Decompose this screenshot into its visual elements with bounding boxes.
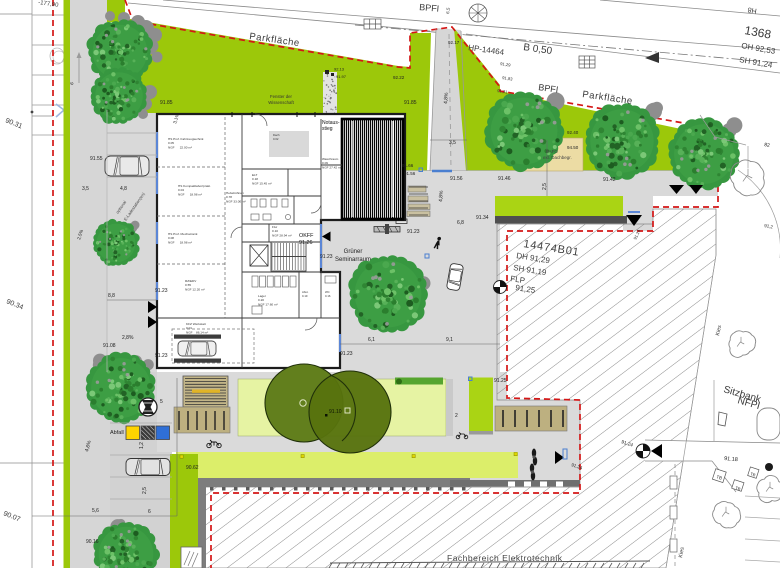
svg-text:91.23: 91.23 [155,288,168,294]
svg-text:4,8: 4,8 [120,186,127,192]
svg-text:92.13: 92.13 [334,67,345,72]
svg-text:Fachbereich Elektrotechnik: Fachbereich Elektrotechnik [447,553,563,563]
svg-text:2,5: 2,5 [142,487,148,494]
svg-text:6,1: 6,1 [368,337,375,343]
svg-text:91.18: 91.18 [724,456,738,463]
svg-text:91.23: 91.23 [407,229,420,235]
svg-text:4,8%: 4,8% [438,190,445,202]
svg-text:3,5: 3,5 [449,140,456,146]
svg-text:NGF 12.20 m²: NGF 12.20 m² [185,287,205,291]
svg-text:91.66: 91.66 [402,163,414,168]
svg-text:Wissenschaft: Wissenschaft [268,100,294,105]
svg-text:91.97: 91.97 [336,74,347,79]
svg-text:91.23: 91.23 [320,254,333,260]
svg-text:90.62: 90.62 [186,465,199,471]
svg-text:91.23: 91.23 [155,353,168,359]
svg-text:92.40: 92.40 [567,130,579,135]
svg-text:NGF 33.00 m²: NGF 33.00 m² [226,199,246,203]
svg-text:2,5: 2,5 [542,183,548,190]
svg-text:91.34: 91.34 [476,215,489,221]
svg-text:NGF 18.98 m²: NGF 18.98 m² [178,192,202,196]
svg-text:91.25: 91.25 [494,378,507,384]
svg-text:Grüner: Grüner [344,249,363,255]
svg-text:1,2: 1,2 [139,442,145,449]
svg-text:NGF 15.45 m²: NGF 15.45 m² [252,181,272,185]
svg-text:exl. Dachbegr.: exl. Dachbegr. [543,155,572,160]
svg-text:NGF 86.14 m²: NGF 86.14 m² [186,330,208,334]
svg-text:OKFF: OKFF [299,233,314,239]
svg-text:6: 6 [148,509,151,515]
svg-text:NGF 28.94 m²: NGF 28.94 m² [272,233,292,237]
svg-text:91.85: 91.85 [160,100,173,106]
svg-text:91.23: 91.23 [340,351,353,357]
svg-text:PAFO: PAFO [546,149,558,154]
svg-text:Abfall: Abfall [110,430,124,436]
svg-text:6,5: 6,5 [445,7,451,14]
svg-text:2,8%: 2,8% [122,335,134,341]
svg-text:91.85: 91.85 [404,100,417,106]
svg-text:NGF 27.42 m²: NGF 27.42 m² [322,165,342,169]
svg-text:0.16: 0.16 [325,294,331,298]
svg-text:91.55: 91.55 [90,156,103,162]
svg-text:5: 5 [160,399,163,405]
svg-text:94.50: 94.50 [567,145,579,150]
svg-text:92.17: 92.17 [448,40,460,45]
svg-text:0.02: 0.02 [273,137,279,141]
svg-text:NGF 17.60 m²: NGF 17.60 m² [258,302,278,306]
svg-text:91.26: 91.26 [299,240,313,246]
svg-text:90.16: 90.16 [86,539,99,545]
svg-text:0.19: 0.19 [302,294,308,298]
svg-text:91.08: 91.08 [103,343,116,349]
svg-text:91.56: 91.56 [450,176,463,182]
svg-text:4,8%: 4,8% [443,92,450,104]
svg-text:9,1: 9,1 [446,337,453,343]
svg-text:NGF 22.00 m²: NGF 22.00 m² [168,145,192,149]
svg-text:5,6: 5,6 [92,508,99,514]
svg-text:Fenster der: Fenster der [270,94,293,99]
svg-text:91.10: 91.10 [329,409,342,415]
svg-text:91.56: 91.56 [404,171,416,176]
svg-text:91.42: 91.42 [603,177,616,183]
svg-text:BPFI: BPFI [419,2,440,14]
svg-text:6,8: 6,8 [457,220,464,226]
svg-text:2: 2 [455,413,458,419]
svg-text:91.46: 91.46 [498,176,511,182]
svg-text:stieg: stieg [322,126,333,132]
svg-text:92.22: 92.22 [393,75,405,80]
svg-text:8,8: 8,8 [108,293,115,299]
svg-text:NGF 18.98 m²: NGF 18.98 m² [168,240,192,244]
svg-text:3,5: 3,5 [82,186,89,192]
